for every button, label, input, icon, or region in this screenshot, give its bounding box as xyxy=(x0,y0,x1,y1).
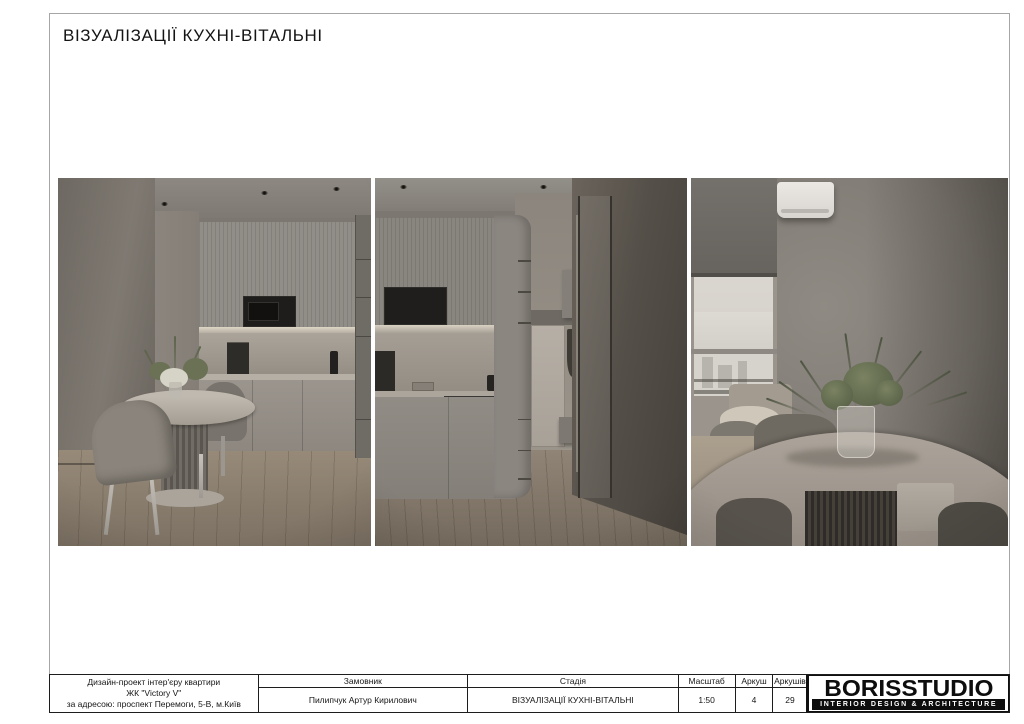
logo-wordmark: BORISSTUDIO xyxy=(824,677,993,699)
stage-column: Стадія ВІЗУАЛІЗАЦІЇ КУХНІ-ВІТАЛЬНІ xyxy=(467,675,678,712)
sheets-label: Аркушів xyxy=(773,675,806,688)
sheet-label: Аркуш xyxy=(736,675,773,688)
stage-value: ВІЗУАЛІЗАЦІЇ КУХНІ-ВІТАЛЬНІ xyxy=(468,688,678,712)
render-dining-window xyxy=(691,178,1008,546)
scale-label: Масштаб xyxy=(679,675,735,688)
title-block: Дизайн-проект інтер'єру квартири ЖК "Vic… xyxy=(49,674,1010,713)
scale-column: Масштаб 1:50 xyxy=(678,675,735,712)
sheet-frame: ВІЗУАЛІЗАЦІЇ КУХНІ-ВІТАЛЬНІ xyxy=(49,13,1010,713)
vignette-overlay xyxy=(58,178,371,546)
vignette-overlay xyxy=(375,178,687,546)
scale-value: 1:50 xyxy=(679,688,735,712)
project-line: ЖК "Victory V" xyxy=(50,688,258,699)
page-title: ВІЗУАЛІЗАЦІЇ КУХНІ-ВІТАЛЬНІ xyxy=(63,26,323,46)
client-column: Замовник Пилипчук Артур Кирилович xyxy=(258,675,468,712)
sheets-value: 29 xyxy=(773,688,806,712)
render-kitchen-hallway xyxy=(375,178,687,546)
sheet-count-column: Аркушів 29 xyxy=(772,675,806,712)
sheet-number-column: Аркуш 4 xyxy=(735,675,773,712)
project-line: Дизайн-проект інтер'єру квартири xyxy=(50,677,258,688)
client-label: Замовник xyxy=(259,675,468,688)
client-name: Пилипчук Артур Кирилович xyxy=(259,688,468,712)
render-kitchen-dining xyxy=(58,178,371,546)
sheet-value: 4 xyxy=(736,688,773,712)
studio-logo: BORISSTUDIO INTERIOR DESIGN & ARCHITECTU… xyxy=(806,675,1009,712)
presentation-sheet: ВІЗУАЛІЗАЦІЇ КУХНІ-ВІТАЛЬНІ xyxy=(0,0,1024,724)
project-description: Дизайн-проект інтер'єру квартири ЖК "Vic… xyxy=(50,675,258,712)
vignette-overlay xyxy=(691,178,1008,546)
stage-label: Стадія xyxy=(468,675,678,688)
project-line: за адресою: проспект Перемоги, 5-В, м.Ки… xyxy=(50,699,258,710)
